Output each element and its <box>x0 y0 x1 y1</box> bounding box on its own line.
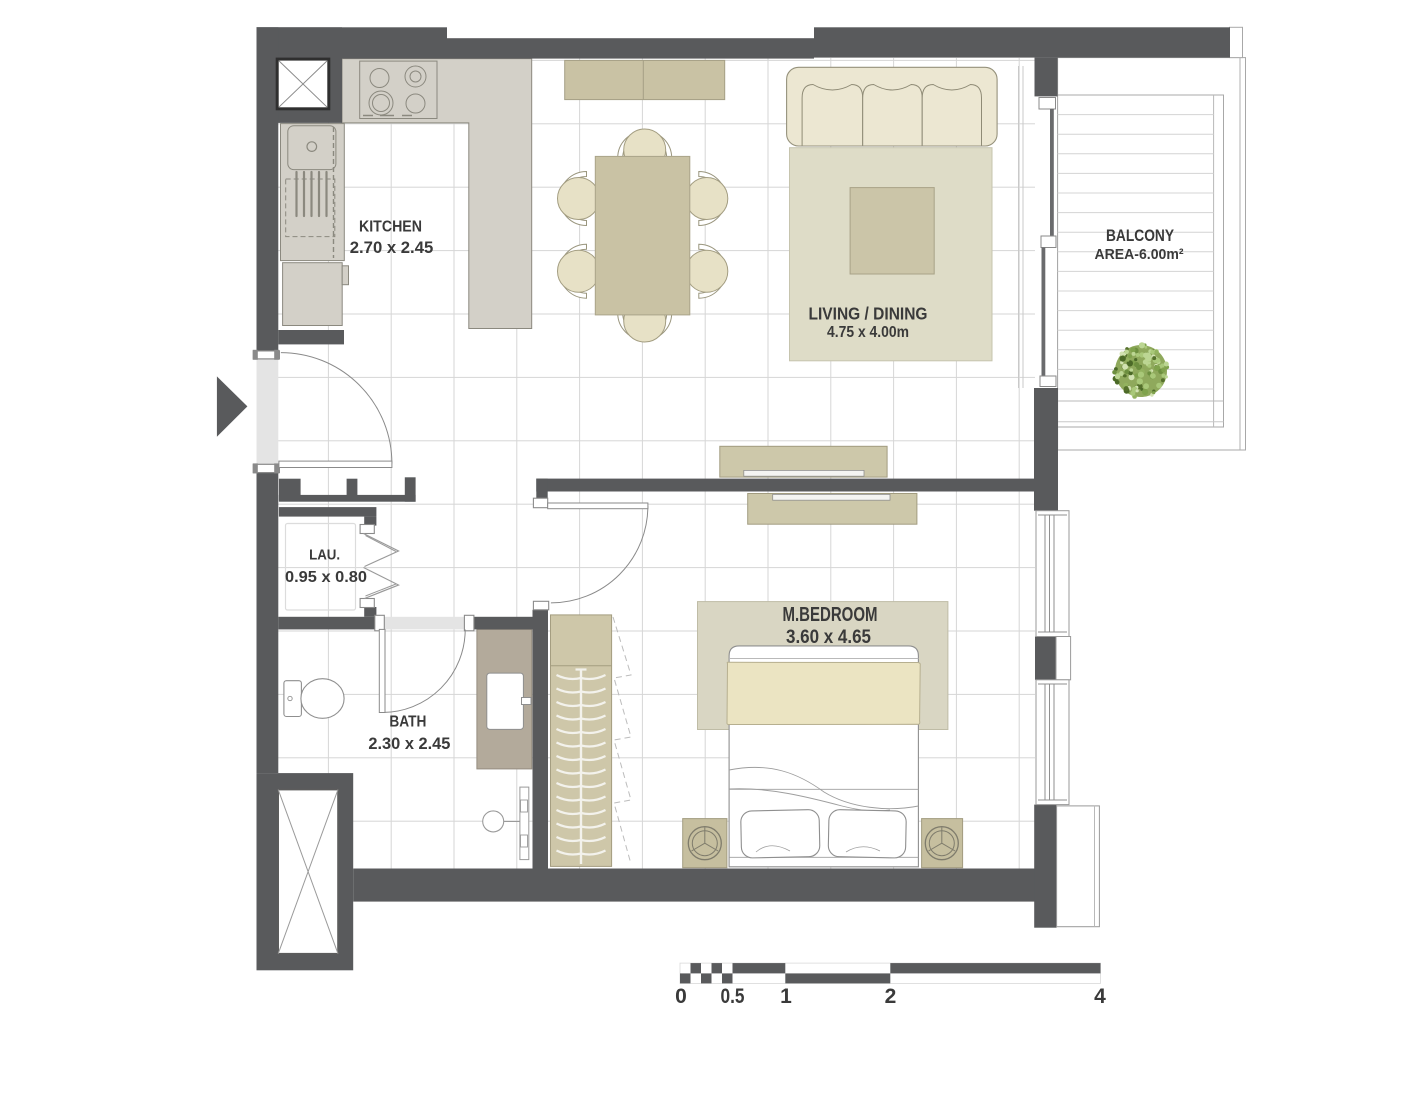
svg-text:2.70 x 2.45: 2.70 x 2.45 <box>350 238 434 257</box>
svg-text:0: 0 <box>675 985 687 1008</box>
svg-text:M.BEDROOM: M.BEDROOM <box>783 603 878 626</box>
svg-text:2.30 x 2.45: 2.30 x 2.45 <box>368 735 450 753</box>
svg-text:AREA-6.00m²: AREA-6.00m² <box>1095 246 1184 263</box>
svg-text:2: 2 <box>885 985 897 1008</box>
svg-text:4.75 x 4.00m: 4.75 x 4.00m <box>827 324 909 341</box>
svg-text:BATH: BATH <box>389 714 426 731</box>
svg-text:0.5: 0.5 <box>721 985 745 1008</box>
svg-text:LAU.: LAU. <box>309 547 340 564</box>
svg-text:BALCONY: BALCONY <box>1106 226 1175 245</box>
svg-text:3.60 x 4.65: 3.60 x 4.65 <box>786 627 871 648</box>
svg-text:KITCHEN: KITCHEN <box>359 219 422 236</box>
svg-text:1: 1 <box>780 985 792 1008</box>
svg-text:LIVING / DINING: LIVING / DINING <box>809 304 928 324</box>
svg-text:0.95 x 0.80: 0.95 x 0.80 <box>285 569 367 586</box>
svg-text:4: 4 <box>1094 985 1106 1008</box>
